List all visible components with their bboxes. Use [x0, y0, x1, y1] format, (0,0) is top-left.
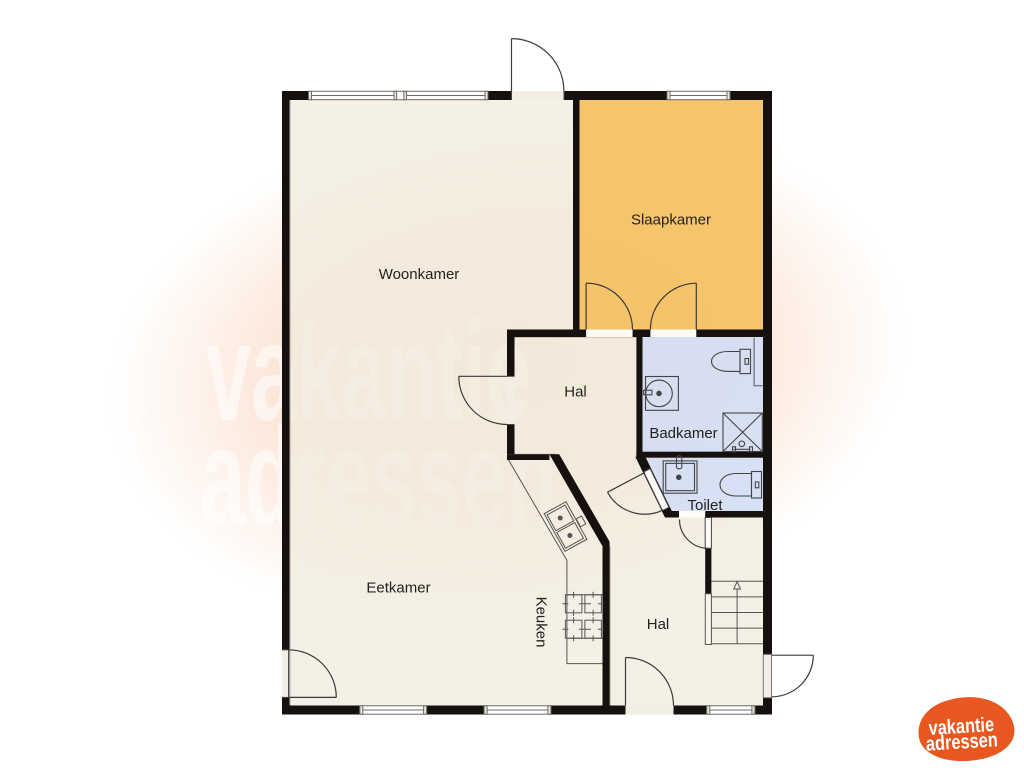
svg-text:adressen: adressen	[925, 728, 998, 756]
svg-text:Badkamer: Badkamer	[649, 425, 717, 442]
svg-text:Toilet: Toilet	[687, 497, 723, 514]
svg-text:Slaapkamer: Slaapkamer	[631, 211, 711, 228]
svg-text:Eetkamer: Eetkamer	[366, 580, 430, 597]
svg-text:Hal: Hal	[647, 616, 670, 633]
svg-text:Woonkamer: Woonkamer	[379, 266, 460, 283]
svg-text:Keuken: Keuken	[532, 597, 549, 648]
svg-text:Hal: Hal	[564, 383, 587, 400]
